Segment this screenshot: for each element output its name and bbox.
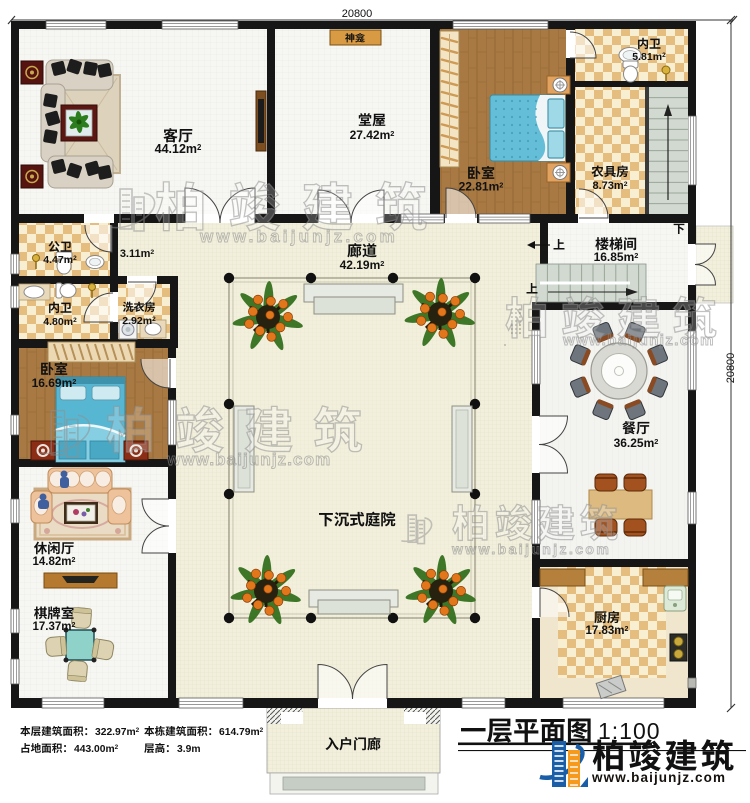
svg-text:22.81m2: 22.81m2: [459, 180, 504, 194]
svg-text:3.9m: 3.9m: [177, 744, 200, 755]
svg-text:42.19m2: 42.19m2: [340, 258, 385, 272]
svg-text:3.11m2: 3.11m2: [120, 248, 155, 260]
svg-text:4.80m2: 4.80m2: [43, 316, 77, 328]
svg-text:17.83m2: 17.83m2: [586, 625, 629, 637]
svg-text:www.baijunjz.com: www.baijunjz.com: [591, 770, 726, 785]
svg-text:36.25m2: 36.25m2: [614, 436, 659, 450]
svg-text:4.47m2: 4.47m2: [43, 254, 77, 266]
svg-text:www.baijunjz.com: www.baijunjz.com: [166, 450, 331, 469]
svg-text:20800: 20800: [342, 8, 373, 20]
svg-text:16.69m2: 16.69m2: [32, 376, 77, 390]
svg-text:www.baijunjz.com: www.baijunjz.com: [451, 541, 611, 557]
svg-text:443.00m2: 443.00m2: [74, 744, 119, 755]
svg-text:17.37m2: 17.37m2: [33, 621, 76, 633]
svg-text:322.97m2: 322.97m2: [95, 727, 140, 738]
svg-text:5.81m2: 5.81m2: [632, 51, 666, 63]
svg-text:614.79m2: 614.79m2: [219, 727, 264, 738]
svg-text:www.baijunjz.com: www.baijunjz.com: [562, 332, 715, 349]
svg-text:27.42m2: 27.42m2: [350, 128, 395, 142]
svg-text:www.baijunjz.com: www.baijunjz.com: [199, 227, 398, 246]
svg-text:16.85m2: 16.85m2: [594, 250, 639, 264]
svg-text:44.12m2: 44.12m2: [155, 142, 202, 156]
svg-text:8.73m2: 8.73m2: [593, 180, 628, 192]
svg-text:14.82m2: 14.82m2: [33, 556, 76, 568]
svg-text:2.92m2: 2.92m2: [122, 315, 156, 327]
svg-text:20800: 20800: [725, 353, 737, 384]
svg-text:1:100: 1:100: [598, 718, 661, 744]
